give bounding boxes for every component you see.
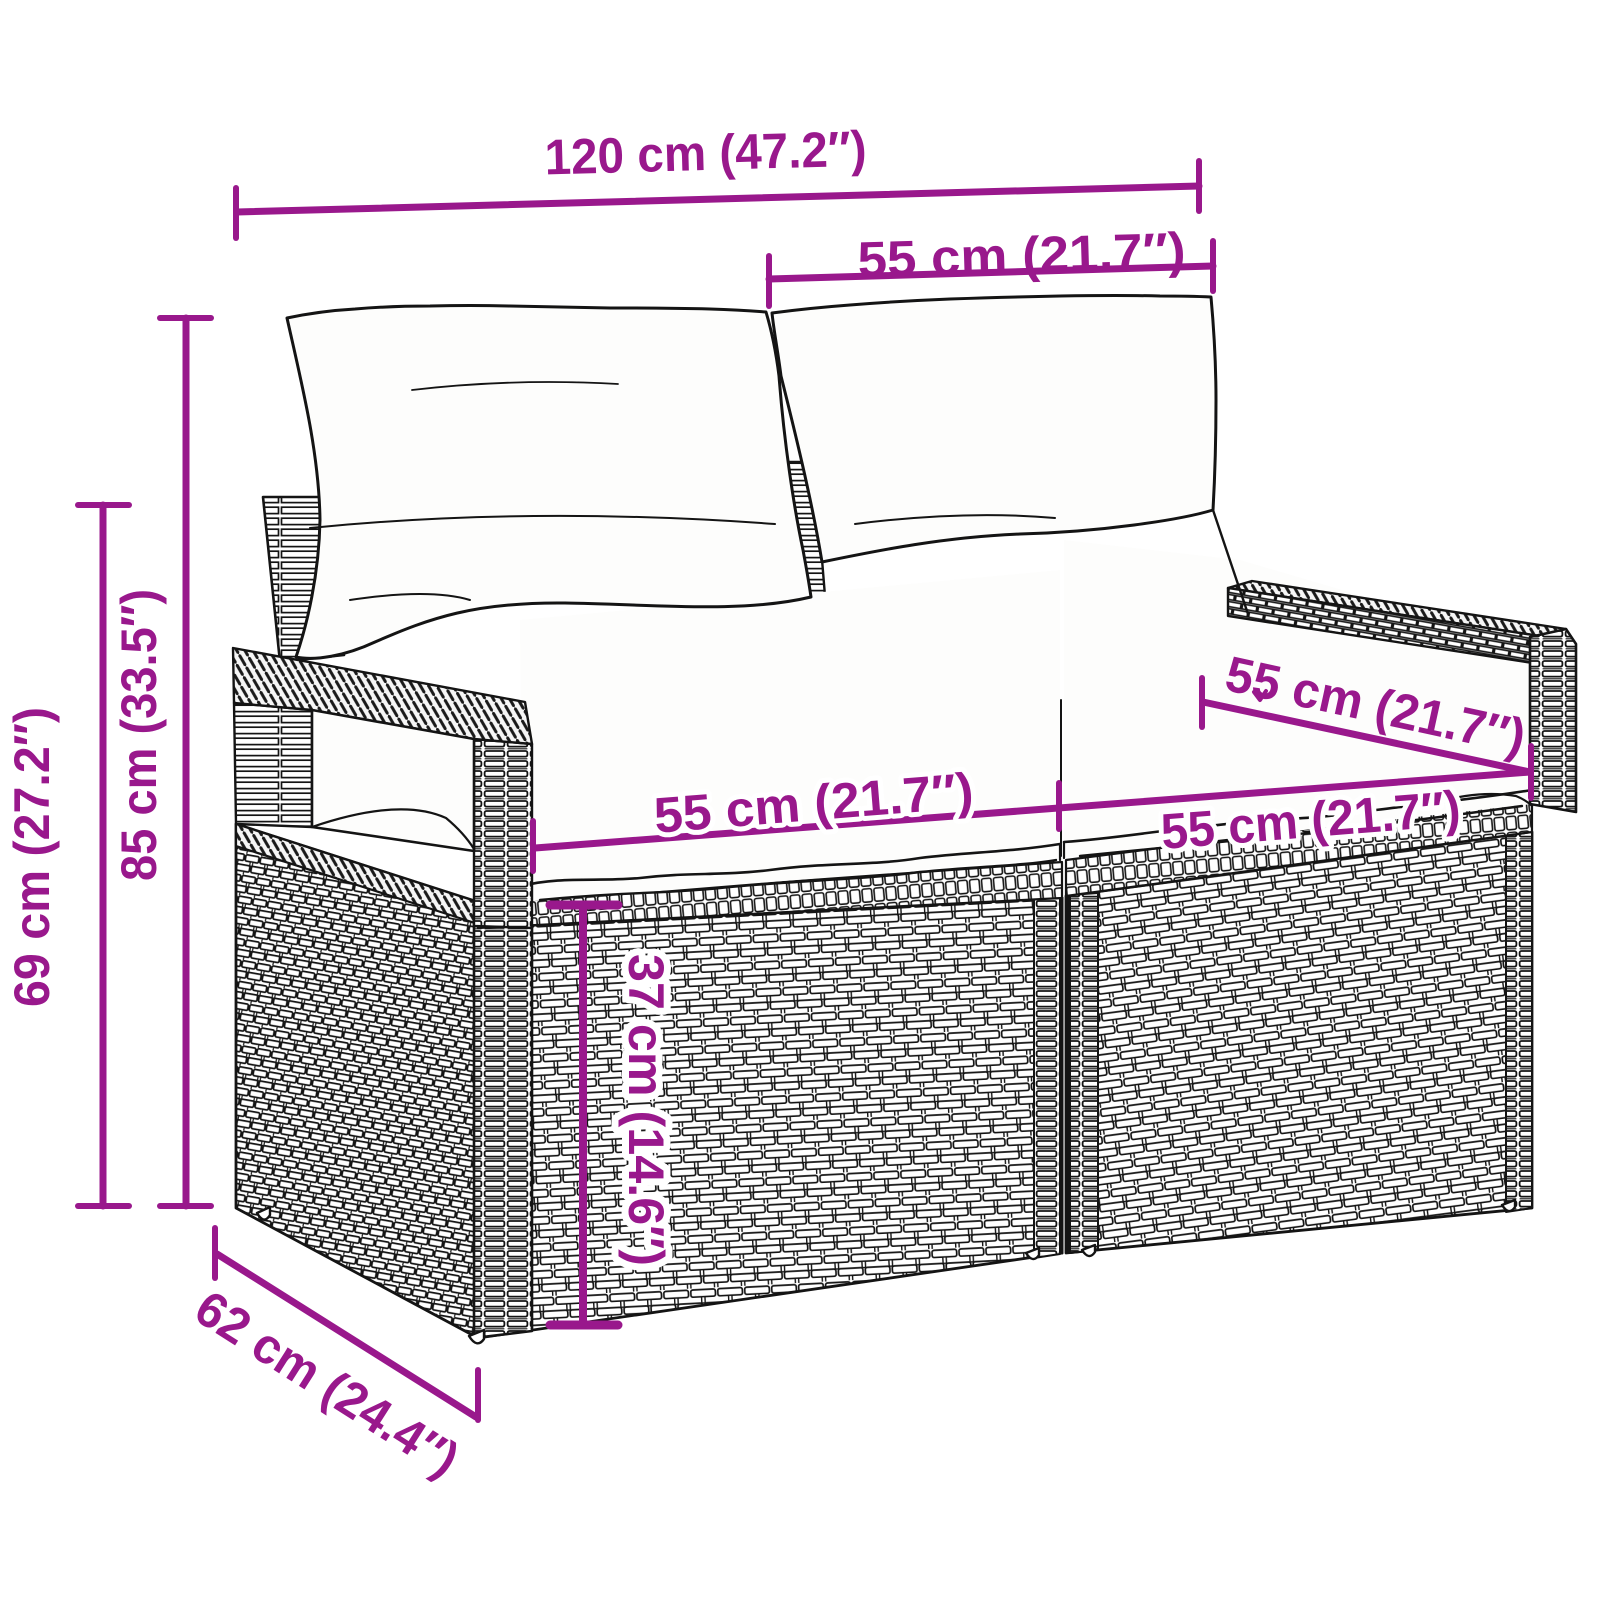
svg-text:120 cm (47.2″): 120 cm (47.2″) bbox=[544, 121, 867, 186]
svg-text:85 cm (33.5″): 85 cm (33.5″) bbox=[111, 589, 167, 881]
svg-text:69 cm (27.2″): 69 cm (27.2″) bbox=[4, 707, 60, 1007]
svg-text:37 cm (14.6″): 37 cm (14.6″) bbox=[618, 954, 674, 1266]
svg-text:55 cm (21.7″): 55 cm (21.7″) bbox=[857, 222, 1187, 288]
